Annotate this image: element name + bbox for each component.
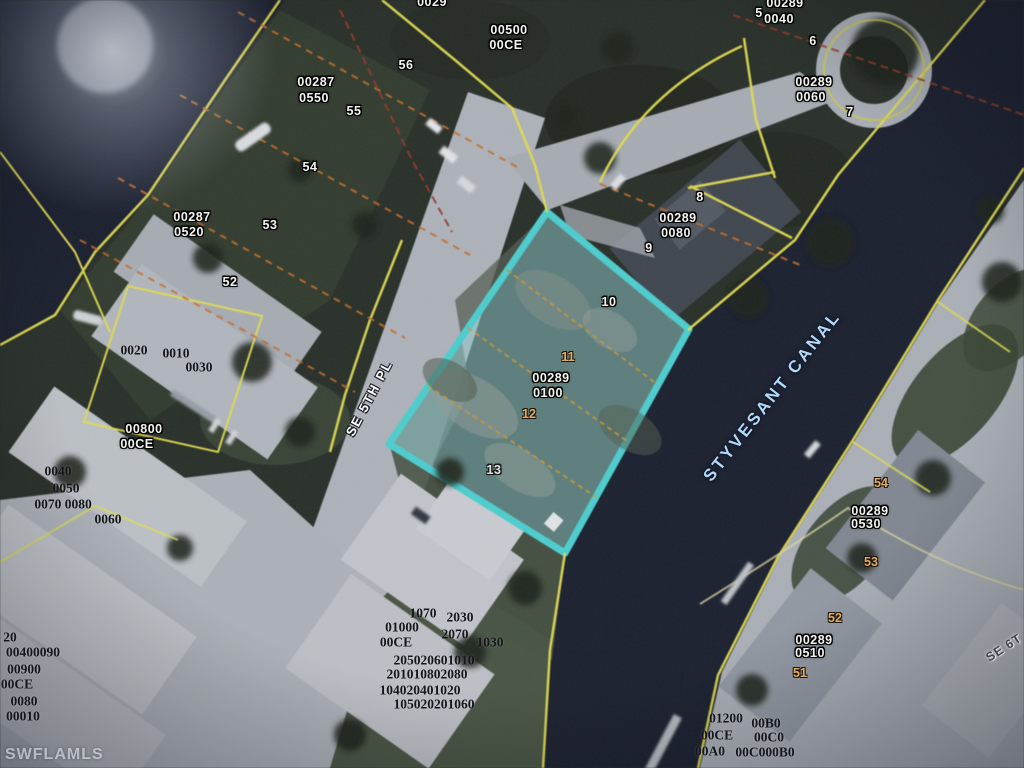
unit-number-label: 00A0 — [695, 744, 725, 758]
parcel-id-label: 00287 — [297, 76, 334, 89]
parcel-id-label: 00287 — [173, 211, 210, 224]
parcel-id-label: 00289 — [766, 0, 803, 9]
parcel-id-label: 00800 — [125, 423, 162, 436]
unit-number-label: 2030 — [447, 610, 474, 624]
parcel-id-label: 0040 — [764, 13, 794, 26]
unit-number-label: 00B0 — [751, 716, 780, 730]
street-name-label: SE 5TH PL — [344, 358, 395, 438]
map-label-layer: 00290050000CE560028705505554002870520535… — [0, 0, 1024, 768]
parcel-id-label: 6 — [809, 35, 816, 48]
unit-number-label: 105020201060 — [394, 697, 475, 711]
parcel-id-label: 7 — [846, 106, 853, 119]
lot-number-label: 11 — [561, 351, 574, 364]
unit-number-label: 0080 — [11, 694, 38, 708]
parcel-id-label: 53 — [263, 219, 278, 232]
unit-number-label: 0010 — [163, 346, 190, 360]
parcel-id-label: 0060 — [796, 91, 826, 104]
lot-number-label: 54 — [874, 477, 888, 490]
parcel-id-label: 13 — [487, 464, 502, 477]
parcel-id-label: 0520 — [174, 226, 204, 239]
parcel-id-label: 00CE — [489, 39, 522, 52]
unit-number-label: 00CE — [380, 635, 412, 649]
parcel-id-label: 56 — [399, 59, 414, 72]
unit-number-label: 00CE — [701, 728, 733, 742]
parcel-id-label: 00289 — [851, 505, 888, 518]
mls-watermark: SWFLAMLS — [5, 746, 104, 764]
unit-number-label: 2070 — [442, 627, 469, 641]
parcel-id-label: 52 — [223, 276, 238, 289]
parcel-id-label: 0080 — [661, 227, 691, 240]
unit-number-label: 104020401020 — [380, 683, 461, 697]
lot-number-label: 51 — [793, 667, 807, 680]
parcel-id-label: 00289 — [795, 76, 832, 89]
parcel-id-label: 54 — [303, 161, 318, 174]
parcel-id-label: 0510 — [795, 647, 825, 660]
parcel-id-label: 10 — [602, 296, 617, 309]
unit-number-label: 0020 — [121, 343, 148, 357]
unit-number-label: 00400090 — [6, 645, 60, 659]
parcel-id-label: 0029 — [417, 0, 447, 8]
unit-number-label: 01200 — [709, 711, 743, 725]
parcel-id-label: 0530 — [851, 518, 881, 531]
parcel-id-label: 0100 — [533, 387, 563, 400]
parcel-id-label: 00289 — [659, 212, 696, 225]
unit-number-label: 1070 — [410, 606, 437, 620]
unit-number-label: 0040 — [45, 464, 72, 478]
unit-number-label: 00900 — [7, 662, 41, 676]
unit-number-label: 00CE — [1, 677, 33, 691]
unit-number-label: 0060 — [95, 512, 122, 526]
unit-number-label: 201010802080 — [387, 667, 468, 681]
unit-number-label: 20 — [3, 630, 17, 644]
parcel-id-label: 0550 — [299, 92, 329, 105]
unit-number-label: 00C0 — [754, 730, 784, 744]
parcel-id-label: 00CE — [120, 438, 153, 451]
lot-number-label: 12 — [522, 408, 536, 421]
parcel-id-label: 55 — [347, 105, 362, 118]
unit-number-label: 1030 — [477, 635, 504, 649]
unit-number-label: 0070 0080 — [34, 497, 91, 511]
map-canvas[interactable]: 00290050000CE560028705505554002870520535… — [0, 0, 1024, 768]
unit-number-label: 0030 — [186, 360, 213, 374]
unit-number-label: 205020601010 — [394, 653, 475, 667]
canal-name-label: STYVESANT CANAL — [700, 308, 843, 485]
parcel-id-label: 8 — [696, 191, 703, 204]
street-name-label: SE 6T — [984, 632, 1024, 664]
unit-number-label: 0050 — [53, 481, 80, 495]
unit-number-label: 00010 — [6, 709, 40, 723]
lot-number-label: 52 — [828, 612, 842, 625]
lot-number-label: 53 — [864, 556, 878, 569]
parcel-id-label: 00500 — [490, 24, 527, 37]
parcel-id-label: 9 — [645, 242, 652, 255]
unit-number-label: 01000 — [385, 620, 419, 634]
parcel-id-label: 00289 — [532, 372, 569, 385]
unit-number-label: 00C000B0 — [735, 745, 794, 759]
parcel-id-label: 00289 — [795, 634, 832, 647]
parcel-id-label: 5 — [755, 7, 762, 20]
